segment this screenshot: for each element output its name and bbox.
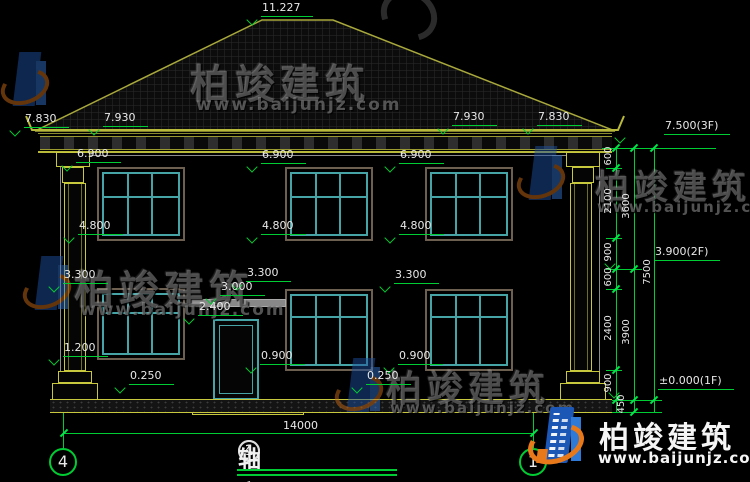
dim-value: 600 bbox=[604, 259, 614, 295]
dim-line-14000 bbox=[63, 433, 533, 434]
window-mullion bbox=[479, 296, 481, 364]
pilaster-right-plinth bbox=[560, 383, 606, 400]
window-mullion bbox=[127, 295, 129, 353]
dim-value: 2400 bbox=[604, 310, 614, 346]
window-transom bbox=[292, 316, 366, 318]
brand-logo-icon bbox=[527, 405, 597, 473]
title-underline bbox=[237, 469, 397, 471]
pilaster-right-neck bbox=[572, 167, 594, 183]
dim-value: 2100 bbox=[604, 183, 614, 219]
dim-value-total: 14000 bbox=[283, 419, 318, 432]
cornice-line-bottom bbox=[38, 151, 612, 153]
entry-door bbox=[213, 319, 259, 400]
title-underline-2 bbox=[237, 474, 397, 476]
pilaster-flutes bbox=[574, 184, 588, 370]
window-transom bbox=[104, 312, 178, 314]
window-mullion bbox=[151, 174, 153, 234]
window-mullion bbox=[455, 296, 457, 364]
window-mullion bbox=[127, 174, 129, 234]
pilaster-right-base bbox=[566, 371, 600, 383]
window-mullion bbox=[315, 174, 317, 234]
window-mullion bbox=[151, 295, 153, 353]
axis-bubble-4: 4 bbox=[49, 448, 77, 476]
pilaster-left-plinth bbox=[52, 383, 98, 400]
window-mullion bbox=[479, 174, 481, 234]
dim-chain-outer bbox=[654, 148, 655, 412]
window-transom bbox=[104, 196, 178, 198]
dim-value: 3900 bbox=[622, 314, 632, 350]
window-mullion bbox=[455, 174, 457, 234]
window-mullion bbox=[339, 174, 341, 234]
window-glazing bbox=[102, 293, 180, 355]
cornice-dentils bbox=[40, 136, 612, 150]
door-panel bbox=[219, 325, 253, 394]
dim-value: 3600 bbox=[622, 188, 632, 224]
window-transom bbox=[432, 316, 506, 318]
dim-chain-mid bbox=[634, 148, 635, 412]
dim-value: 7500 bbox=[643, 254, 653, 290]
pilaster-left-base bbox=[58, 371, 92, 383]
window-mullion bbox=[315, 296, 317, 364]
window-transom bbox=[292, 196, 366, 198]
dim-line-7500 bbox=[602, 148, 716, 149]
dim-value: 900 bbox=[604, 365, 614, 401]
dim-chain-inner bbox=[616, 148, 617, 412]
pilaster-right-shaft bbox=[570, 183, 592, 371]
elevation-drawing-canvas: 11.227 7.830 7.930 7.930 7.830 6.900 6.9… bbox=[0, 0, 750, 482]
window-mullion bbox=[339, 296, 341, 364]
dim-value: 600 bbox=[604, 138, 614, 174]
brand-site: www.baijunjz.com bbox=[598, 449, 750, 467]
window-1f-left bbox=[97, 288, 185, 360]
window-transom bbox=[432, 196, 506, 198]
pilaster-right-capital bbox=[566, 152, 600, 167]
